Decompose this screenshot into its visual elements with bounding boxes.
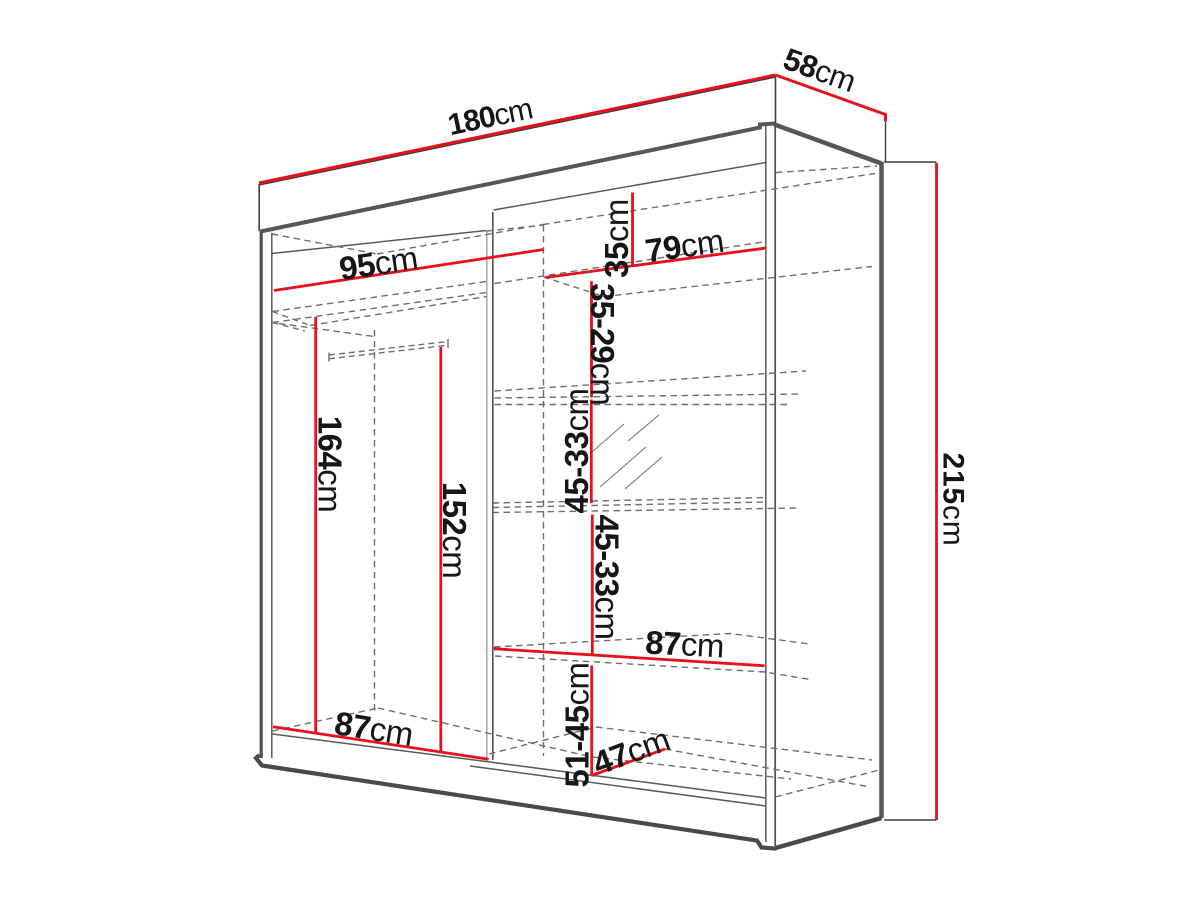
svg-text:35-29cm: 35-29cm (584, 283, 621, 404)
svg-text:35cm: 35cm (598, 199, 635, 278)
svg-text:51-45cm: 51-45cm (559, 663, 596, 788)
svg-text:164cm: 164cm (312, 416, 349, 513)
svg-text:87cm: 87cm (644, 623, 725, 664)
svg-text:152cm: 152cm (436, 482, 473, 579)
svg-text:45-33cm: 45-33cm (589, 515, 626, 640)
svg-text:215cm: 215cm (937, 452, 970, 546)
svg-text:45-33cm: 45-33cm (558, 389, 595, 514)
